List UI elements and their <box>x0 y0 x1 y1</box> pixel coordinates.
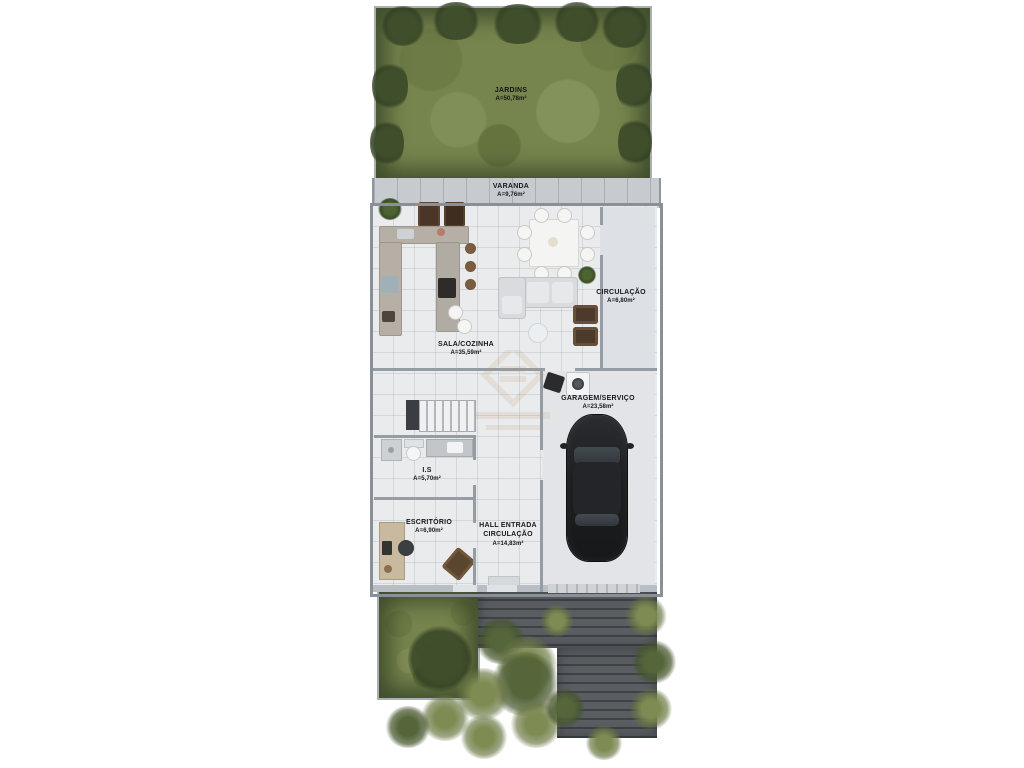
grass-tuft-icon <box>385 706 431 748</box>
bar-stool <box>465 243 476 254</box>
coffee-machine-icon <box>382 311 395 322</box>
dining-chair <box>534 208 549 223</box>
toilet-icon <box>404 439 422 460</box>
grass-tuft-icon <box>632 640 676 684</box>
label-is: I.S A=5,70m² <box>413 466 441 484</box>
room-name: GARAGEM/SERVIÇO <box>561 394 635 403</box>
ottoman <box>528 323 548 343</box>
front-door-opening <box>487 585 517 592</box>
wall <box>374 497 475 500</box>
island-chair <box>457 319 472 334</box>
wall <box>374 435 475 438</box>
label-varanda: VARANDA A=9,76m² <box>493 182 529 200</box>
wall <box>540 480 543 592</box>
label-circulacao: CIRCULAÇÃO A=6,80m² <box>596 288 646 306</box>
bar-stool <box>465 279 476 290</box>
room-name: JARDINS <box>495 86 527 95</box>
staircase <box>419 400 476 432</box>
label-hall: HALL ENTRADA CIRCULAÇÃO A=14,83m² <box>479 521 537 548</box>
wall <box>473 435 476 460</box>
bush-icon <box>430 2 482 40</box>
car-roof <box>573 462 621 516</box>
room-name: HALL ENTRADA <box>479 521 537 530</box>
label-sala: SALA/COZINHA A=35,59m² <box>438 340 494 358</box>
potted-plant-icon <box>378 198 402 220</box>
wall <box>540 368 543 450</box>
wall <box>473 485 476 523</box>
room-area: A=6,80m² <box>596 297 646 305</box>
side-gate-opening <box>453 585 477 592</box>
car-rear-window <box>575 514 619 526</box>
grass-tuft-icon <box>585 726 623 760</box>
wall <box>600 255 603 368</box>
kitchen-sink <box>397 229 414 239</box>
grass-tuft-icon <box>540 605 574 637</box>
grass-tuft-icon <box>625 596 667 636</box>
dining-chair <box>517 247 532 262</box>
garage-door-threshold <box>548 584 640 593</box>
room-name: ESCRITÓRIO <box>406 518 452 527</box>
bush-icon <box>370 118 404 168</box>
corner-plant-icon <box>578 266 596 284</box>
room-area: A=6,90m² <box>406 527 452 535</box>
room-area: A=23,58m² <box>561 403 635 411</box>
dining-chair <box>517 225 532 240</box>
grass-tuft-icon <box>460 715 508 759</box>
label-garagem: GARAGEM/SERVIÇO A=23,58m² <box>561 394 635 412</box>
dining-chair <box>557 208 572 223</box>
room-area: A=9,76m² <box>493 191 529 199</box>
floor-plan-canvas: JARDINS A=50,78m² VARANDA A=9,76m² <box>0 0 1024 768</box>
bush-icon <box>616 58 652 112</box>
bathroom-vanity <box>426 439 473 457</box>
shower-tray <box>381 439 402 461</box>
varanda-armchair <box>418 202 440 227</box>
room-name: SALA/COZINHA <box>438 340 494 349</box>
bush-icon <box>490 4 546 44</box>
room-area: A=5,70m² <box>413 475 441 483</box>
stair-landing <box>406 400 419 430</box>
grass-tuft-icon <box>630 688 672 730</box>
room-name: I.S <box>413 466 441 475</box>
office-chair <box>398 540 414 556</box>
bush-icon <box>600 6 650 48</box>
room-area: A=35,59m² <box>438 349 494 357</box>
room-name: CIRCULAÇÃO <box>596 288 646 297</box>
leather-armchair <box>573 327 598 346</box>
leather-armchair <box>573 305 598 324</box>
prep-sink <box>381 276 398 293</box>
room-name-2: CIRCULAÇÃO <box>479 530 537 539</box>
bush-icon <box>618 116 652 168</box>
label-escritorio: ESCRITÓRIO A=6,90m² <box>406 518 452 536</box>
washing-machine-icon <box>566 372 590 396</box>
dining-chair <box>580 247 595 262</box>
dining-chair <box>580 225 595 240</box>
wall <box>372 368 545 371</box>
label-jardins: JARDINS A=50,78m² <box>495 86 527 104</box>
car-mirror <box>626 443 634 449</box>
cooktop-icon <box>438 278 456 298</box>
island-chair <box>448 305 463 320</box>
bush-icon <box>380 6 426 46</box>
wall <box>473 548 476 585</box>
room-name: VARANDA <box>493 182 529 191</box>
room-area: A=50,78m² <box>495 95 527 103</box>
sofa-chaise <box>498 277 526 319</box>
counter-decor <box>437 228 445 236</box>
varanda-armchair <box>444 202 465 227</box>
room-area: A=14,83m² <box>479 540 537 548</box>
wall <box>600 207 603 225</box>
table-centerpiece <box>548 237 558 247</box>
car-mirror <box>560 443 568 449</box>
grass-tuft-icon <box>545 688 585 728</box>
bush-icon <box>372 60 408 112</box>
bush-icon <box>552 2 602 42</box>
wall <box>575 368 657 371</box>
bar-stool <box>465 261 476 272</box>
